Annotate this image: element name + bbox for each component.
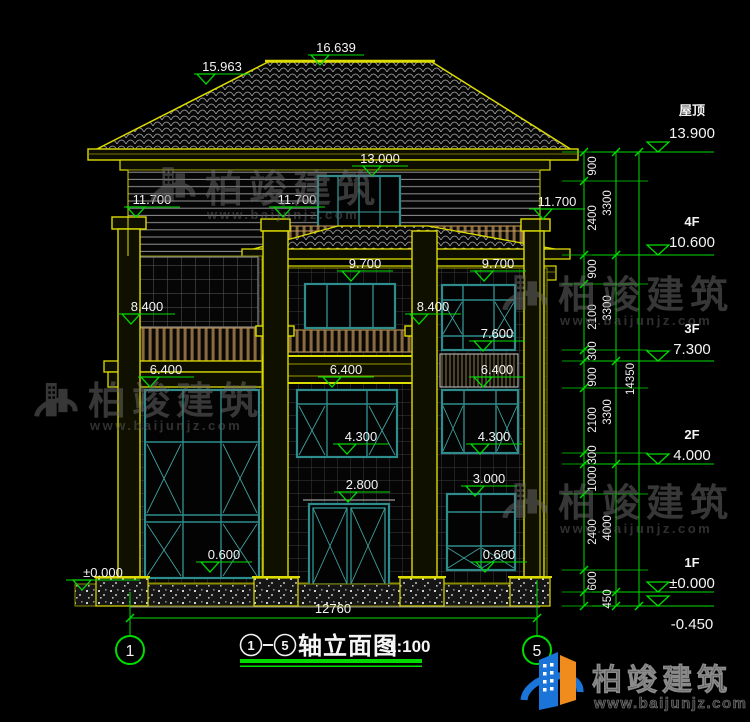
main-roof bbox=[88, 61, 578, 160]
left-3f-railing bbox=[131, 328, 262, 361]
spot-value: 15.963 bbox=[202, 59, 242, 74]
watermark-url: www.baijunjz.com bbox=[559, 521, 712, 536]
title-axis-start: 1 bbox=[247, 638, 254, 653]
watermark-mid-left: 柏竣建筑 www.baijunjz.com bbox=[37, 381, 264, 433]
spot-value: 8.400 bbox=[131, 299, 164, 314]
spot-value: 6.400 bbox=[150, 362, 183, 377]
floor-level-markers: 屋顶 13.900 4F 10.600 3F 7.300 2F 4.000 1F bbox=[592, 103, 715, 633]
level-roof: 屋顶 13.900 bbox=[592, 103, 715, 152]
watermark-brand: 柏竣建筑 bbox=[88, 381, 264, 423]
level-label: 1F bbox=[684, 555, 699, 570]
center-3f-window bbox=[305, 284, 395, 328]
level-value: 7.300 bbox=[673, 341, 711, 358]
dim-segment: 300 bbox=[587, 445, 599, 464]
middle-chain-labels: 3300 3300 3300 4000 450 bbox=[602, 190, 614, 608]
brand-logo: 柏竣建筑 www.baijunjz.com bbox=[524, 652, 747, 712]
axis-number: 1 bbox=[126, 643, 135, 660]
center-3f-railing bbox=[272, 330, 424, 352]
dim-segment: 2100 bbox=[587, 407, 599, 433]
watermark-brand: 柏竣建筑 bbox=[558, 483, 734, 525]
center-2f-window bbox=[297, 390, 397, 457]
inner-right-pilaster bbox=[412, 231, 437, 578]
dim-segment: 600 bbox=[587, 571, 599, 590]
spot-value: ±0.000 bbox=[83, 565, 123, 580]
dim-segment: 450 bbox=[602, 589, 614, 608]
dim-segment: 300 bbox=[587, 341, 599, 360]
level-value: 13.900 bbox=[669, 125, 715, 142]
level-value: 4.000 bbox=[673, 447, 711, 464]
spot-value: 7.600 bbox=[481, 326, 514, 341]
cad-elevation-drawing: 16.639 15.963 13.000 11.700 11.700 11.70… bbox=[0, 0, 750, 722]
total-height-dimension: 14350 bbox=[625, 363, 637, 395]
brand-logo-url: www.baijunjz.com bbox=[593, 695, 747, 712]
vertical-dimension-chains: 900 2400 900 2100 300 900 2100 300 1000 … bbox=[562, 148, 648, 610]
drawing-title: 1 5 轴立面图 1:100 bbox=[240, 632, 430, 667]
spot-value: 11.700 bbox=[538, 194, 577, 209]
spot-value: 8.400 bbox=[417, 299, 450, 314]
entrance-door bbox=[303, 500, 395, 588]
left-3f-glazing bbox=[140, 257, 258, 327]
spot-value: 4.300 bbox=[345, 429, 378, 444]
spot-value: 3.000 bbox=[473, 471, 506, 486]
spot-value: 4.300 bbox=[478, 429, 511, 444]
watermark-url: www.baijunjz.com bbox=[206, 207, 359, 222]
title-scale: 1:100 bbox=[387, 637, 430, 656]
level-value: ±0.000 bbox=[669, 575, 715, 592]
spot-value: 9.700 bbox=[349, 256, 382, 271]
level-label: 屋顶 bbox=[679, 103, 705, 118]
axis-number: 5 bbox=[533, 643, 542, 660]
watermark-brand: 柏竣建筑 bbox=[205, 169, 381, 211]
dim-segment: 900 bbox=[587, 367, 599, 386]
title-text: 轴立面图 bbox=[298, 632, 398, 660]
brand-logo-text: 柏竣建筑 bbox=[592, 663, 732, 697]
spot-value: 6.400 bbox=[481, 362, 514, 377]
level-value: -0.450 bbox=[671, 616, 714, 633]
level-4f: 4F 10.600 bbox=[592, 214, 715, 255]
level-label: 4F bbox=[684, 214, 699, 229]
spot-value: 2.800 bbox=[346, 477, 379, 492]
spot-value: 6.400 bbox=[330, 362, 363, 377]
brand-logo-icon bbox=[524, 652, 580, 710]
spot-value: 13.000 bbox=[360, 151, 400, 166]
elevation-canvas: 16.639 15.963 13.000 11.700 11.700 11.70… bbox=[0, 0, 750, 722]
dim-segment: 3300 bbox=[602, 190, 614, 216]
watermark-url: www.baijunjz.com bbox=[89, 418, 242, 433]
dim-segment: 3300 bbox=[602, 399, 614, 425]
level-label: 2F bbox=[684, 427, 699, 442]
level-2f: 2F 4.000 bbox=[592, 427, 714, 464]
dim-segment: 900 bbox=[587, 156, 599, 175]
level-1f: 1F ±0.000 bbox=[592, 555, 715, 592]
spot-value: 9.700 bbox=[482, 256, 515, 271]
title-underline-thin bbox=[240, 666, 422, 668]
title-underline-thick bbox=[240, 659, 422, 663]
title-axis-end: 5 bbox=[281, 638, 288, 653]
watermark-url: www.baijunjz.com bbox=[559, 313, 712, 328]
level-value: 10.600 bbox=[669, 234, 715, 251]
spot-value: 16.639 bbox=[316, 40, 356, 55]
total-width-dimension: 12760 bbox=[315, 601, 351, 616]
spot-value: 0.600 bbox=[208, 547, 241, 562]
spot-value: 0.600 bbox=[483, 547, 516, 562]
axis-bubble-1: 1 bbox=[116, 636, 144, 664]
watermark-brand: 柏竣建筑 bbox=[558, 275, 734, 317]
inner-left-pilaster bbox=[263, 231, 288, 578]
dim-segment: 2400 bbox=[587, 205, 599, 231]
